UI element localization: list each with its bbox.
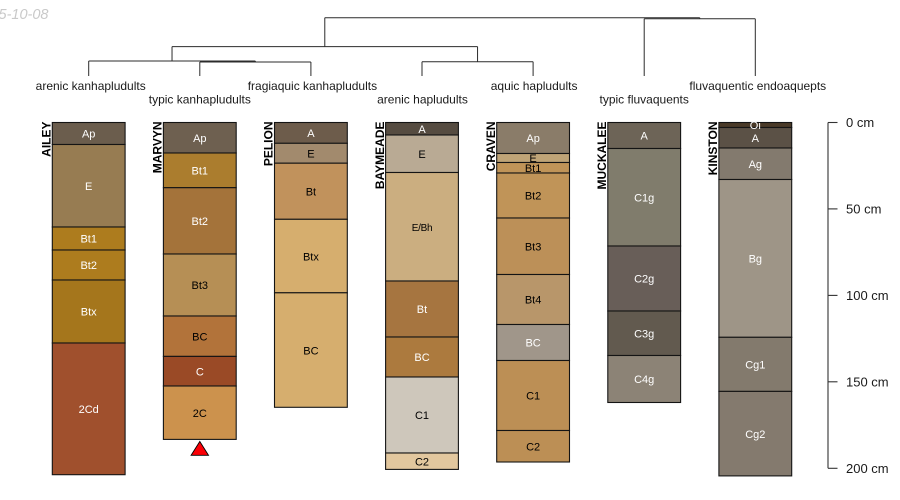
- svg-text:A: A: [307, 128, 315, 140]
- svg-text:Bt3: Bt3: [525, 241, 542, 253]
- svg-text:KINSTON: KINSTON: [706, 122, 720, 176]
- svg-text:fluvaquentic endoaquepts: fluvaquentic endoaquepts: [689, 79, 826, 93]
- svg-text:0 cm: 0 cm: [846, 115, 874, 130]
- svg-text:Bt4: Bt4: [525, 295, 542, 307]
- svg-text:Oi: Oi: [750, 120, 761, 132]
- svg-text:50 cm: 50 cm: [846, 201, 881, 216]
- svg-text:MARVYN: MARVYN: [151, 122, 165, 174]
- svg-text:2Cd: 2Cd: [79, 404, 99, 416]
- svg-text:E/Bh: E/Bh: [412, 223, 432, 234]
- svg-text:C2: C2: [526, 441, 540, 453]
- svg-text:Bt: Bt: [306, 186, 316, 198]
- svg-text:Bt: Bt: [417, 304, 427, 316]
- svg-text:5-10-08: 5-10-08: [0, 7, 48, 23]
- svg-text:aquic hapludults: aquic hapludults: [491, 79, 578, 93]
- svg-text:AILEY: AILEY: [40, 122, 54, 157]
- svg-text:BAYMEADE: BAYMEADE: [373, 122, 387, 190]
- svg-text:Bt1: Bt1: [192, 166, 209, 178]
- svg-text:BC: BC: [192, 331, 207, 343]
- svg-text:C2: C2: [415, 456, 429, 468]
- svg-text:E: E: [418, 149, 425, 161]
- svg-text:2C: 2C: [193, 408, 207, 420]
- svg-text:BC: BC: [525, 338, 540, 350]
- svg-text:150 cm: 150 cm: [846, 374, 889, 389]
- svg-text:C3g: C3g: [634, 328, 654, 340]
- svg-text:Bt2: Bt2: [80, 260, 97, 272]
- svg-text:Bg: Bg: [749, 254, 762, 266]
- svg-text:Cg1: Cg1: [745, 360, 765, 372]
- svg-text:C4g: C4g: [634, 374, 654, 386]
- svg-text:Bt1: Bt1: [80, 234, 97, 246]
- svg-text:A: A: [752, 133, 760, 145]
- svg-text:200 cm: 200 cm: [846, 461, 889, 476]
- svg-text:A: A: [641, 131, 649, 143]
- svg-text:C1: C1: [415, 410, 429, 422]
- svg-text:arenic hapludults: arenic hapludults: [377, 93, 468, 107]
- svg-text:MUCKALEE: MUCKALEE: [595, 122, 609, 190]
- svg-text:Bt3: Bt3: [192, 280, 209, 292]
- svg-text:Bt2: Bt2: [192, 216, 209, 228]
- svg-text:Ap: Ap: [193, 133, 206, 145]
- svg-text:C2g: C2g: [634, 274, 654, 286]
- svg-text:Cg2: Cg2: [745, 429, 765, 441]
- svg-text:typic fluvaquents: typic fluvaquents: [600, 93, 689, 107]
- svg-text:100 cm: 100 cm: [846, 288, 889, 303]
- svg-text:fragiaquic kanhapludults: fragiaquic kanhapludults: [248, 79, 377, 93]
- svg-text:BC: BC: [303, 345, 318, 357]
- svg-text:Btx: Btx: [303, 251, 319, 263]
- svg-text:E: E: [85, 181, 92, 193]
- svg-text:CRAVEN: CRAVEN: [484, 122, 498, 172]
- svg-text:arenic kanhapludults: arenic kanhapludults: [36, 79, 146, 93]
- svg-text:C1: C1: [526, 391, 540, 403]
- svg-text:Bt1: Bt1: [525, 163, 542, 175]
- svg-text:Btx: Btx: [81, 307, 97, 319]
- svg-text:C1g: C1g: [634, 192, 654, 204]
- svg-text:Ap: Ap: [82, 129, 95, 141]
- svg-text:Ap: Ap: [526, 133, 539, 145]
- svg-text:Bt2: Bt2: [525, 191, 542, 203]
- svg-text:C: C: [196, 366, 204, 378]
- svg-text:A: A: [418, 124, 426, 136]
- svg-text:Ag: Ag: [749, 159, 762, 171]
- svg-text:PELION: PELION: [262, 122, 276, 167]
- svg-text:E: E: [307, 148, 314, 160]
- svg-text:BC: BC: [414, 352, 429, 364]
- svg-text:typic kanhapludults: typic kanhapludults: [149, 93, 251, 107]
